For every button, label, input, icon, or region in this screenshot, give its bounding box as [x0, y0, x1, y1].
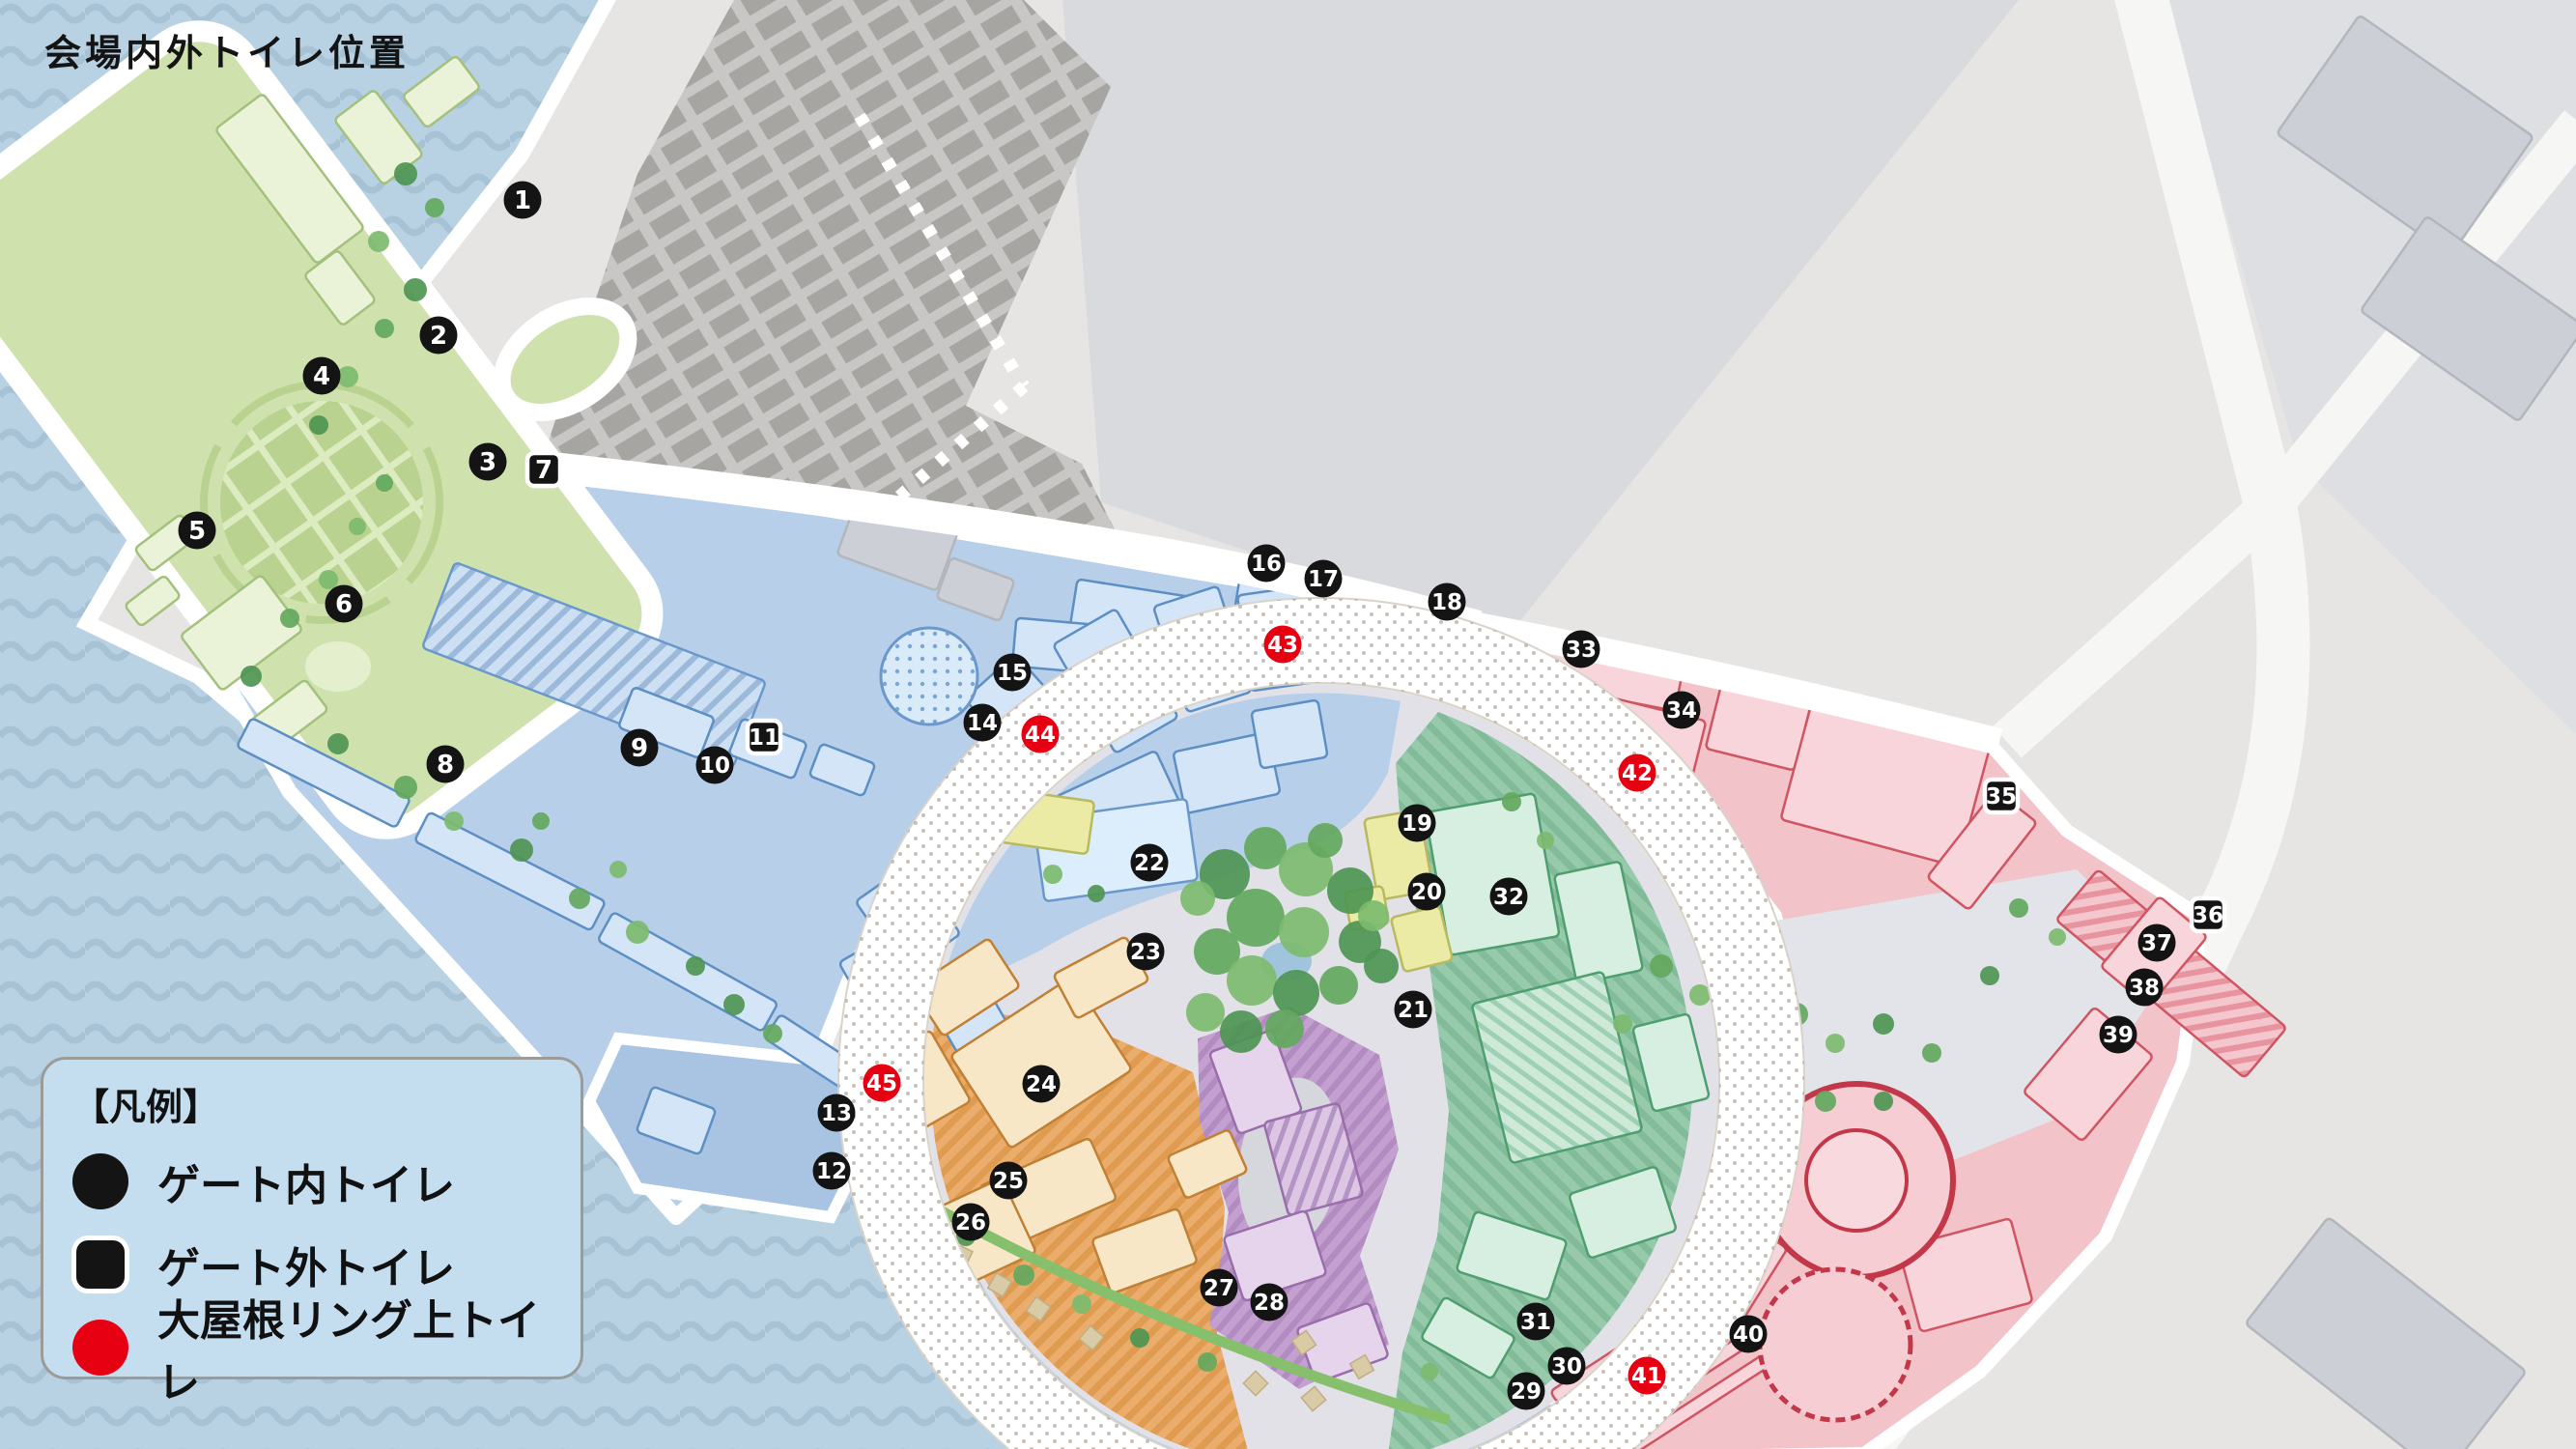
- page-title: 会場内外トイレ位置: [44, 23, 410, 76]
- toilet-marker-3: 3: [469, 443, 507, 481]
- legend-item-gate-inside: ゲート内トイレ: [72, 1140, 580, 1223]
- svg-text:18: 18: [1431, 590, 1462, 615]
- toilet-marker-39: 39: [2100, 1016, 2137, 1054]
- svg-text:8: 8: [437, 751, 454, 780]
- svg-text:5: 5: [188, 517, 206, 546]
- toilet-marker-43: 43: [1264, 626, 1302, 664]
- svg-text:41: 41: [1631, 1364, 1662, 1389]
- toilet-marker-32: 32: [1490, 878, 1528, 916]
- red-circle-icon: [72, 1320, 128, 1376]
- toilet-marker-42: 42: [1619, 754, 1656, 792]
- svg-text:27: 27: [1203, 1276, 1234, 1301]
- toilet-marker-7: 7: [527, 453, 560, 486]
- toilet-marker-14: 14: [964, 704, 1002, 742]
- toilet-marker-33: 33: [1563, 631, 1600, 668]
- svg-text:42: 42: [1622, 761, 1653, 786]
- toilet-marker-44: 44: [1022, 716, 1060, 753]
- svg-text:36: 36: [2193, 903, 2223, 928]
- svg-text:2: 2: [430, 322, 447, 351]
- svg-text:10: 10: [699, 753, 730, 779]
- toilet-marker-30: 30: [1548, 1348, 1586, 1385]
- toilet-marker-41: 41: [1628, 1357, 1666, 1395]
- legend-item-ring-top: 大屋根リング上トイレ: [72, 1306, 580, 1389]
- toilet-marker-9: 9: [621, 729, 659, 767]
- svg-text:23: 23: [1130, 940, 1161, 965]
- toilet-marker-20: 20: [1408, 873, 1446, 911]
- toilet-marker-22: 22: [1131, 844, 1169, 882]
- toilet-marker-37: 37: [2138, 924, 2176, 962]
- toilet-marker-19: 19: [1399, 805, 1436, 842]
- toilet-marker-38: 38: [2126, 969, 2164, 1007]
- svg-text:13: 13: [821, 1101, 852, 1126]
- svg-text:15: 15: [997, 661, 1028, 686]
- toilet-marker-11: 11: [748, 721, 780, 753]
- svg-text:44: 44: [1025, 723, 1056, 748]
- toilet-marker-16: 16: [1248, 545, 1286, 582]
- svg-text:14: 14: [967, 711, 998, 736]
- toilet-marker-36: 36: [2192, 898, 2224, 931]
- legend-label: ゲート内トイレ: [157, 1151, 455, 1212]
- svg-text:11: 11: [749, 725, 779, 751]
- venue-toilet-map: 1234567891011121314151617181920212223242…: [0, 0, 2576, 1449]
- legend-label: 大屋根リング上トイレ: [157, 1286, 580, 1409]
- toilet-marker-34: 34: [1663, 692, 1701, 729]
- svg-text:39: 39: [2103, 1023, 2134, 1048]
- svg-text:24: 24: [1026, 1072, 1057, 1097]
- svg-text:38: 38: [2129, 976, 2160, 1001]
- svg-text:7: 7: [535, 456, 552, 485]
- toilet-marker-45: 45: [863, 1065, 901, 1102]
- toilet-marker-5: 5: [179, 512, 216, 550]
- svg-text:33: 33: [1566, 638, 1597, 663]
- svg-text:31: 31: [1520, 1310, 1551, 1335]
- svg-text:22: 22: [1134, 851, 1165, 876]
- svg-text:43: 43: [1267, 633, 1298, 658]
- toilet-marker-31: 31: [1517, 1303, 1555, 1341]
- toilet-marker-40: 40: [1730, 1316, 1768, 1353]
- toilet-marker-26: 26: [952, 1204, 990, 1241]
- svg-text:37: 37: [2141, 931, 2172, 956]
- toilet-marker-12: 12: [813, 1152, 851, 1190]
- svg-text:28: 28: [1254, 1291, 1285, 1316]
- svg-text:16: 16: [1251, 552, 1282, 577]
- toilet-marker-17: 17: [1305, 560, 1343, 598]
- svg-text:20: 20: [1411, 880, 1442, 905]
- toilet-marker-35: 35: [1985, 780, 2018, 812]
- toilet-marker-27: 27: [1201, 1269, 1238, 1307]
- black-square-icon: [76, 1240, 125, 1289]
- toilet-marker-21: 21: [1395, 991, 1432, 1029]
- toilet-marker-23: 23: [1127, 933, 1165, 971]
- toilet-marker-13: 13: [818, 1094, 856, 1132]
- svg-text:12: 12: [816, 1159, 847, 1184]
- svg-text:21: 21: [1398, 998, 1429, 1023]
- toilet-marker-28: 28: [1251, 1284, 1288, 1321]
- svg-text:34: 34: [1666, 698, 1697, 724]
- toilet-marker-18: 18: [1429, 583, 1466, 621]
- svg-text:1: 1: [514, 186, 531, 215]
- svg-text:17: 17: [1308, 567, 1339, 592]
- toilet-marker-25: 25: [990, 1162, 1028, 1200]
- svg-text:25: 25: [993, 1169, 1024, 1194]
- svg-text:30: 30: [1551, 1354, 1582, 1379]
- toilet-marker-10: 10: [696, 747, 734, 784]
- svg-text:40: 40: [1733, 1322, 1764, 1348]
- svg-text:19: 19: [1401, 811, 1432, 837]
- black-circle-icon: [72, 1153, 128, 1209]
- toilet-marker-2: 2: [420, 317, 458, 355]
- toilet-marker-29: 29: [1508, 1373, 1545, 1410]
- legend-title: 【凡例】: [72, 1077, 580, 1130]
- svg-text:35: 35: [1986, 784, 2017, 810]
- svg-text:32: 32: [1493, 885, 1524, 910]
- toilet-marker-4: 4: [303, 357, 341, 395]
- toilet-marker-24: 24: [1023, 1065, 1061, 1103]
- svg-text:4: 4: [313, 362, 330, 391]
- legend: 【凡例】 ゲート内トイレ ゲート外トイレ 大屋根リング上トイレ: [41, 1057, 583, 1379]
- toilet-marker-8: 8: [427, 746, 465, 783]
- toilet-marker-15: 15: [994, 654, 1032, 692]
- svg-text:29: 29: [1511, 1379, 1542, 1405]
- svg-text:9: 9: [631, 734, 648, 763]
- svg-text:3: 3: [479, 448, 496, 477]
- toilet-marker-6: 6: [326, 585, 363, 623]
- svg-text:45: 45: [866, 1071, 897, 1096]
- svg-text:26: 26: [955, 1210, 986, 1236]
- toilet-marker-1: 1: [504, 182, 542, 219]
- svg-text:6: 6: [335, 590, 353, 619]
